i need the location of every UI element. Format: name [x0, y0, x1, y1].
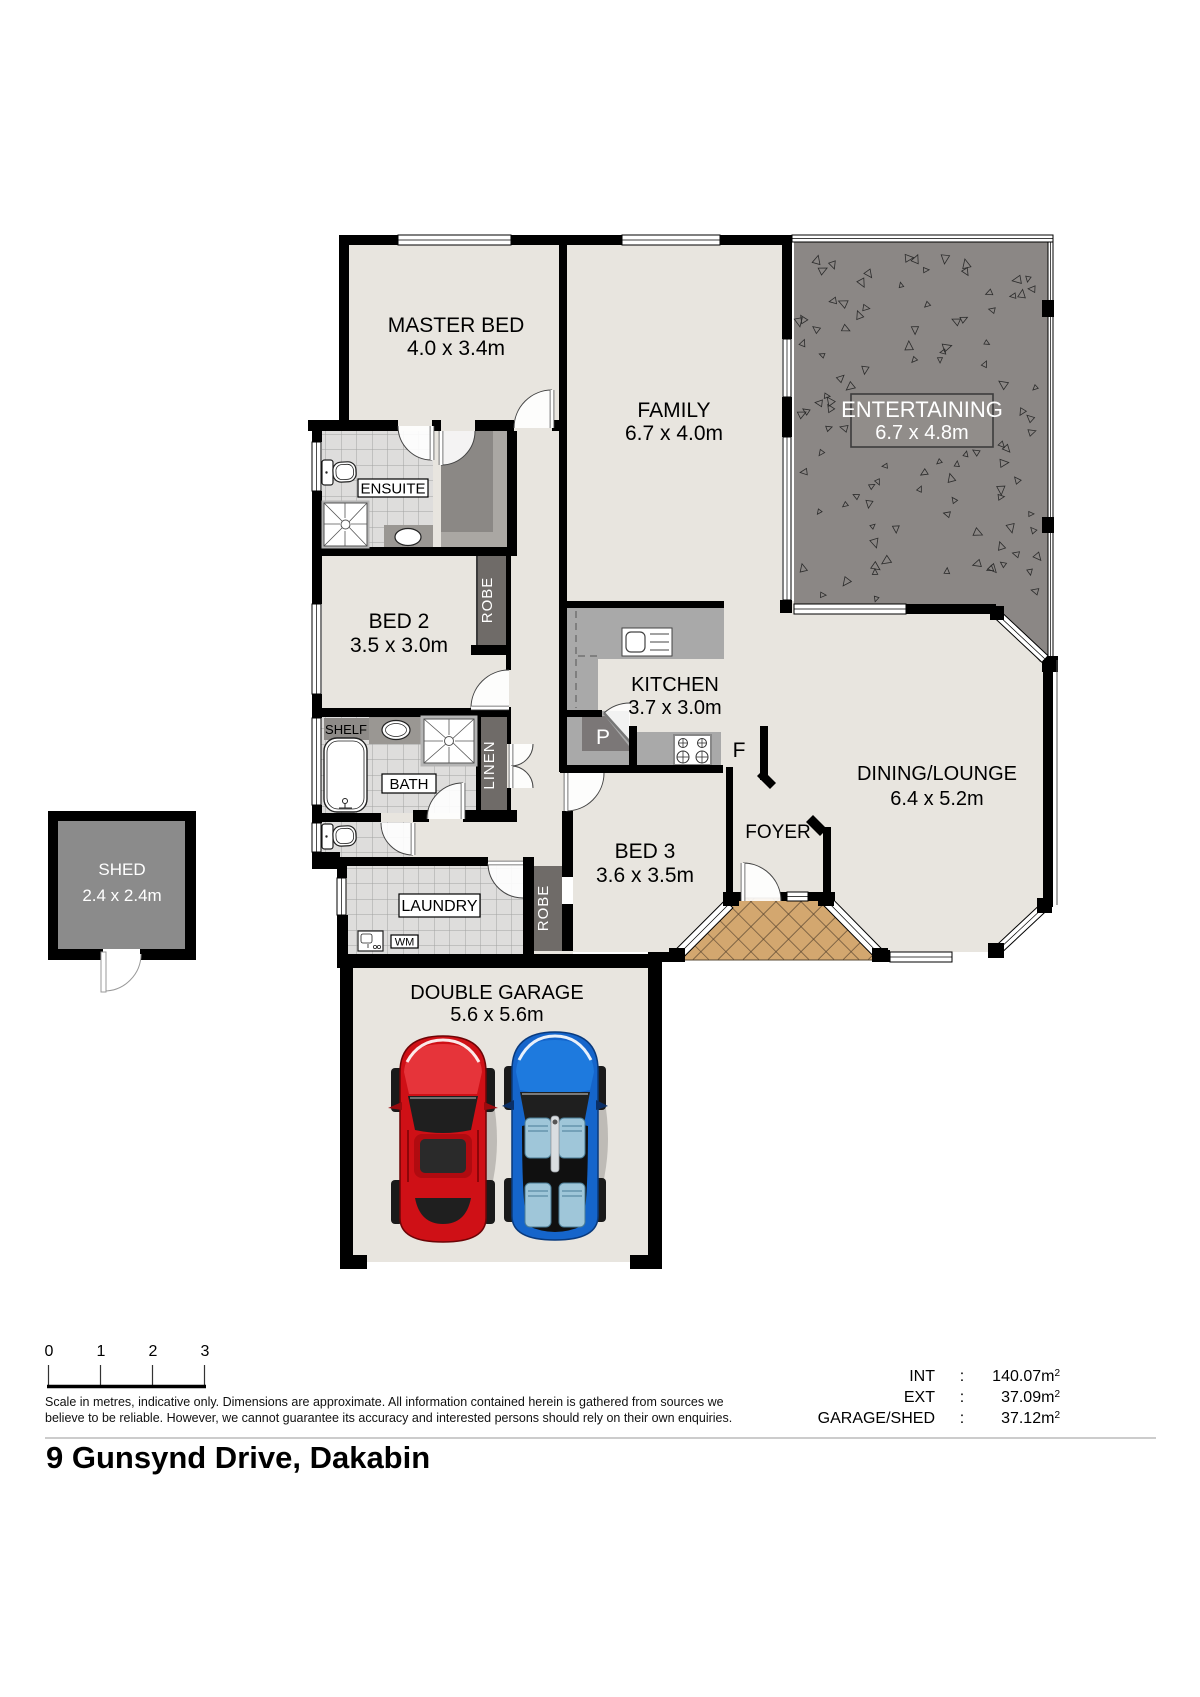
svg-text:1: 1 [97, 1343, 106, 1360]
svg-text:LINEN: LINEN [481, 740, 498, 789]
svg-text:KITCHEN: KITCHEN [631, 674, 719, 696]
svg-text:INT: INT [909, 1368, 935, 1385]
svg-text:140.07m2: 140.07m2 [992, 1368, 1060, 1386]
svg-text:ENTERTAINING: ENTERTAINING [841, 397, 1003, 422]
svg-text:6.4 x 5.2m: 6.4 x 5.2m [890, 788, 983, 810]
svg-text:4.0 x 3.4m: 4.0 x 3.4m [407, 337, 505, 360]
svg-text:FOYER: FOYER [745, 822, 810, 843]
svg-text:DOUBLE GARAGE: DOUBLE GARAGE [410, 982, 583, 1004]
svg-text:F: F [733, 739, 746, 762]
svg-text:Scale in metres, indicative on: Scale in metres, indicative only. Dimens… [45, 1395, 724, 1409]
svg-text:BED 3: BED 3 [615, 840, 676, 863]
svg-text:ENSUITE: ENSUITE [360, 480, 425, 497]
svg-text:EXT: EXT [904, 1389, 935, 1406]
svg-text:9 Gunsynd Drive, Dakabin: 9 Gunsynd Drive, Dakabin [46, 1440, 430, 1475]
svg-text:BED 2: BED 2 [369, 610, 430, 633]
svg-text:0: 0 [45, 1343, 54, 1360]
svg-text:37.12m2: 37.12m2 [1001, 1410, 1060, 1428]
svg-text:ROBE: ROBE [535, 885, 552, 932]
svg-text:MASTER BED: MASTER BED [388, 314, 525, 337]
svg-text:FAMILY: FAMILY [637, 399, 710, 422]
svg-text:believe to be reliable. Howeve: believe to be reliable. However, we cann… [45, 1411, 732, 1425]
svg-text:BATH: BATH [390, 776, 429, 793]
svg-text:6.7 x 4.8m: 6.7 x 4.8m [875, 422, 968, 444]
svg-text::: : [960, 1389, 964, 1406]
svg-text:6.7 x 4.0m: 6.7 x 4.0m [625, 422, 723, 445]
svg-text:3.7 x 3.0m: 3.7 x 3.0m [628, 697, 721, 719]
svg-text::: : [960, 1368, 964, 1385]
svg-text:SHED: SHED [98, 860, 145, 879]
svg-text:3.6 x 3.5m: 3.6 x 3.5m [596, 864, 694, 887]
svg-text:DINING/LOUNGE: DINING/LOUNGE [857, 763, 1017, 785]
svg-text:3: 3 [201, 1343, 210, 1360]
svg-text:2: 2 [149, 1343, 158, 1360]
svg-text:37.09m2: 37.09m2 [1001, 1389, 1060, 1407]
svg-text:SHELF: SHELF [325, 722, 367, 737]
svg-text:5.6 x 5.6m: 5.6 x 5.6m [450, 1004, 543, 1026]
svg-text:3.5 x 3.0m: 3.5 x 3.0m [350, 634, 448, 657]
svg-text:WM: WM [395, 936, 415, 948]
svg-text:2.4 x 2.4m: 2.4 x 2.4m [82, 886, 161, 905]
svg-text:P: P [596, 726, 610, 749]
svg-text:GARAGE/SHED: GARAGE/SHED [818, 1410, 935, 1427]
svg-text:ROBE: ROBE [479, 577, 496, 624]
svg-text::: : [960, 1410, 964, 1427]
svg-text:LAUNDRY: LAUNDRY [401, 898, 478, 915]
